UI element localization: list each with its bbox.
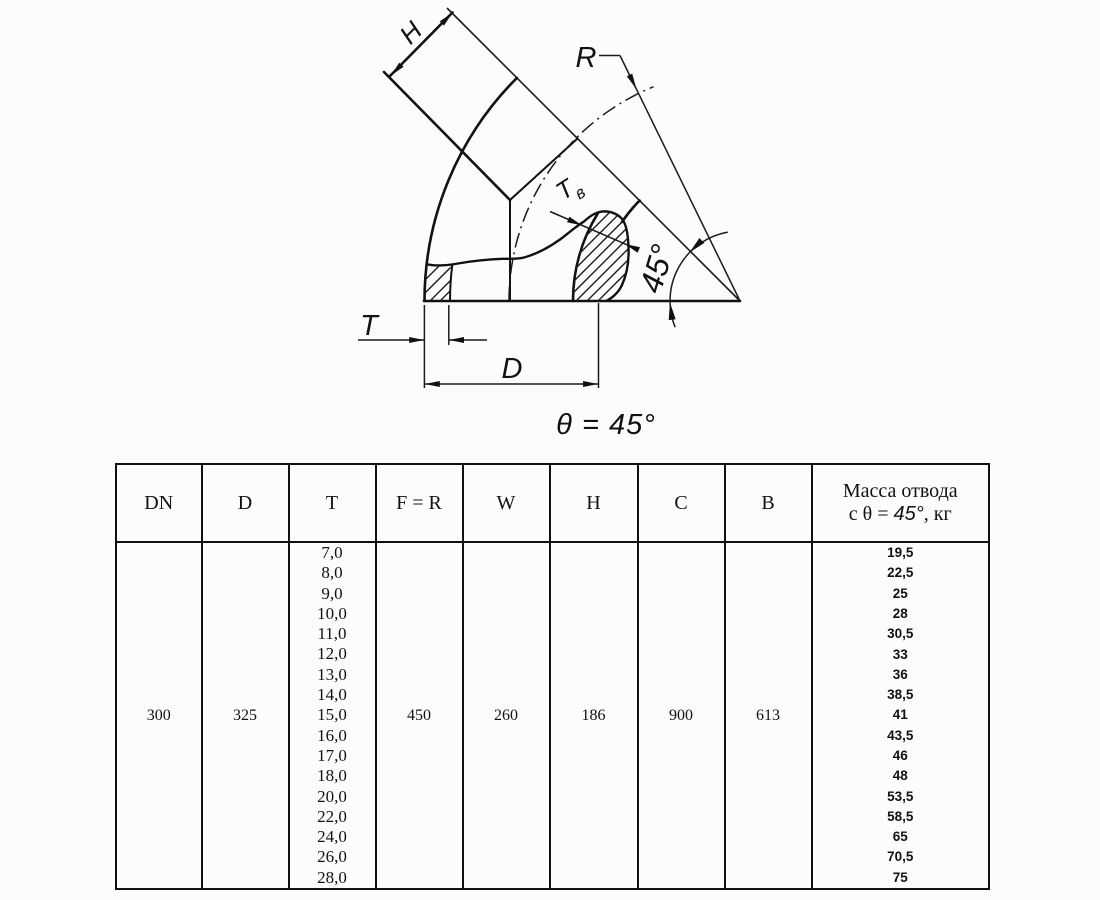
svg-text:θ = 45°: θ = 45° <box>556 409 656 441</box>
svg-text:T: T <box>360 310 380 342</box>
svg-text:R: R <box>576 42 597 74</box>
svg-text:D: D <box>502 353 523 385</box>
svg-text:45°: 45° <box>632 240 681 297</box>
svg-text:Tв: Tв <box>551 170 589 211</box>
svg-text:H: H <box>393 15 428 50</box>
